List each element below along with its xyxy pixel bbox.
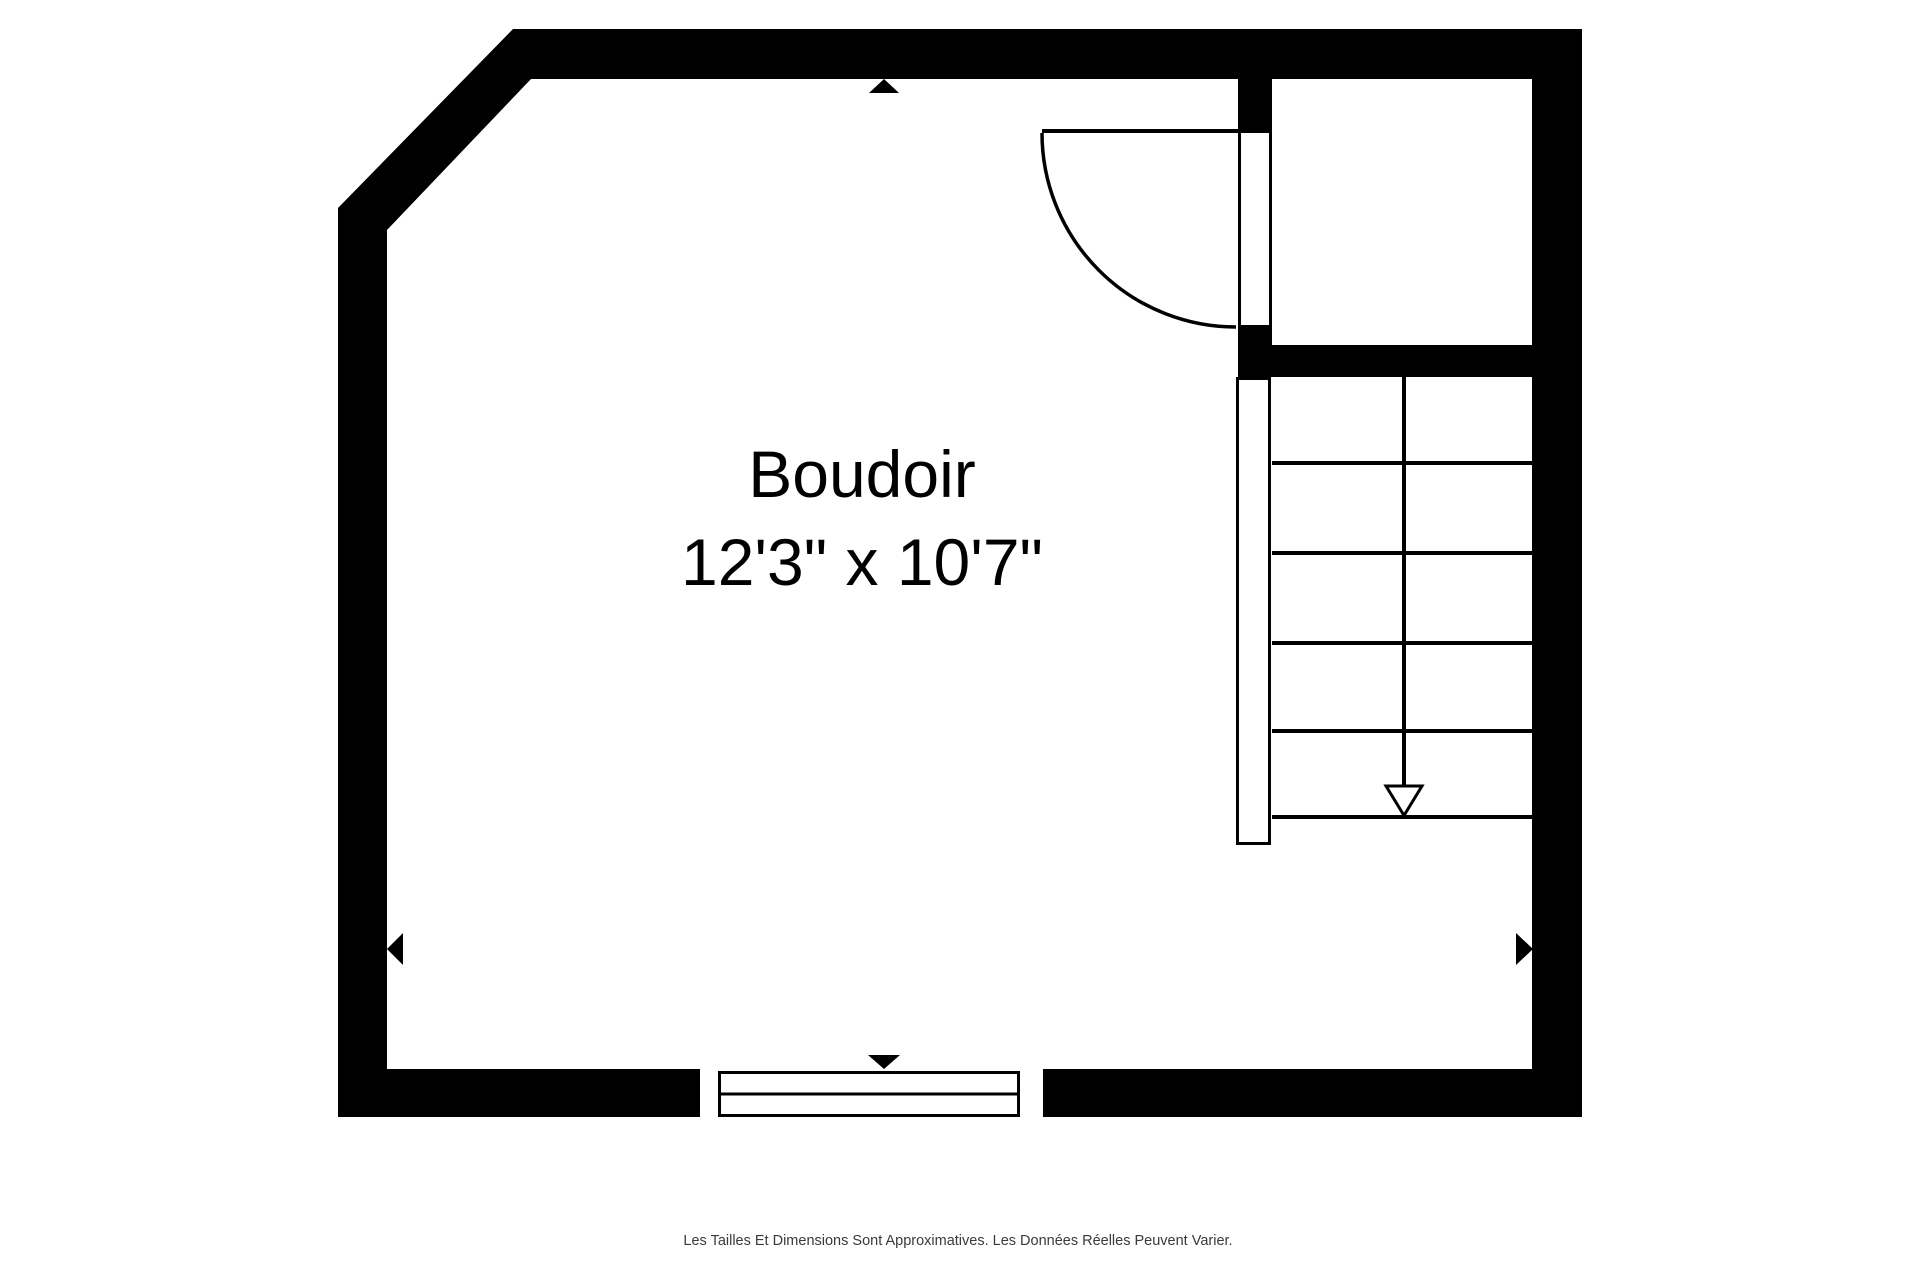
disclaimer-text: Les Tailles Et Dimensions Sont Approxima… xyxy=(683,1233,1232,1249)
floor-plan: Boudoir 12'3" x 10'7" Les Tailles Et Dim… xyxy=(0,0,1920,1280)
triangle-left-icon xyxy=(387,933,403,965)
door xyxy=(1042,131,1271,327)
window xyxy=(700,1068,1043,1118)
partition-stub-above-door xyxy=(1238,79,1272,131)
door-swing-arc xyxy=(1042,133,1236,327)
doorway-opening xyxy=(1240,132,1271,327)
triangle-up-icon xyxy=(869,79,899,93)
stairs xyxy=(1238,377,1533,844)
closet-partition-wall xyxy=(1238,79,1533,377)
floor-plan-canvas: Boudoir 12'3" x 10'7" Les Tailles Et Dim… xyxy=(0,0,1920,1280)
room-name-label: Boudoir xyxy=(748,437,976,511)
stair-rail xyxy=(1238,379,1270,844)
stair-down-arrow-icon xyxy=(1386,786,1422,816)
room-dimensions-label: 12'3" x 10'7" xyxy=(681,525,1043,599)
triangle-right-icon xyxy=(1516,933,1533,965)
partition-below-closet xyxy=(1238,345,1533,377)
triangle-down-icon xyxy=(868,1055,900,1069)
